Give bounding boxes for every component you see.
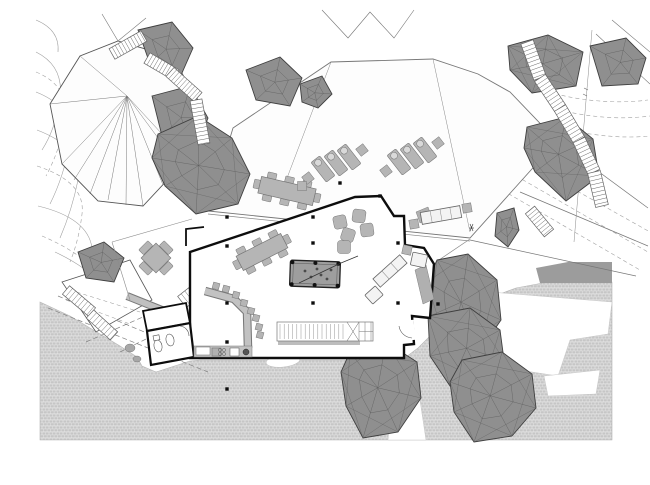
column-dot <box>436 302 439 305</box>
paving-dark-band <box>536 262 612 283</box>
rock-ne-2 <box>590 38 646 86</box>
column-dot <box>338 181 341 184</box>
sink <box>230 348 239 356</box>
wc-sink <box>153 335 160 341</box>
bar-stool <box>212 282 220 290</box>
rock-n-1 <box>246 57 302 106</box>
column-dot <box>225 340 228 343</box>
armchair <box>410 252 427 268</box>
column-dot <box>225 301 228 304</box>
pool-ball <box>304 270 307 273</box>
pool-ball <box>330 269 333 272</box>
pool-ball <box>326 278 329 281</box>
pool-ball <box>320 274 323 277</box>
pouf-seat <box>360 223 375 238</box>
column-dot <box>311 301 314 304</box>
column-dot <box>396 301 399 304</box>
deck-line <box>112 219 192 242</box>
plan-canvas <box>0 0 650 485</box>
rock-outline <box>590 38 646 86</box>
column-dot <box>311 215 314 218</box>
bar-stool <box>240 299 248 307</box>
stair-ne-5 <box>588 171 609 208</box>
bar-stool <box>232 291 240 299</box>
column-dot <box>225 244 228 247</box>
bar-stool <box>256 331 264 339</box>
stair-outline <box>525 206 553 237</box>
side-table <box>409 219 419 229</box>
contour-line <box>36 20 58 52</box>
rock-outline <box>495 208 519 247</box>
column-dot <box>225 215 228 218</box>
site-plan-drawing <box>0 0 650 485</box>
bar-stool <box>252 314 260 322</box>
side-table <box>298 182 307 191</box>
rock-e <box>495 208 519 247</box>
wall-stub <box>186 227 204 246</box>
column-dot <box>311 241 314 244</box>
pouf-seat <box>352 209 367 224</box>
bar-stool <box>255 323 263 331</box>
property-line-tick <box>584 88 588 90</box>
ottoman <box>402 245 413 256</box>
interior-stair-shelf <box>277 322 373 345</box>
small-rock <box>125 344 135 352</box>
pool-ball <box>316 268 319 271</box>
column-dot <box>396 241 399 244</box>
stair-walkway <box>525 206 553 237</box>
column-dot <box>378 194 381 197</box>
bar-stool <box>222 285 230 293</box>
column-dot <box>225 387 228 390</box>
side-table <box>462 203 472 213</box>
canopy-line <box>102 14 118 41</box>
shelf-shadow <box>278 341 360 345</box>
stair-outline <box>277 322 373 341</box>
door-opening <box>411 320 413 340</box>
contour-line-dashed <box>37 166 82 262</box>
stair-outline <box>588 171 609 208</box>
counter-unit <box>212 348 221 356</box>
counter-unit <box>196 347 210 355</box>
rock-outline <box>246 57 302 106</box>
small-rock <box>133 356 141 362</box>
round-fixture <box>243 349 249 355</box>
pouf-seat <box>338 241 351 254</box>
pool-table <box>290 260 341 288</box>
canopy-line <box>322 10 414 38</box>
